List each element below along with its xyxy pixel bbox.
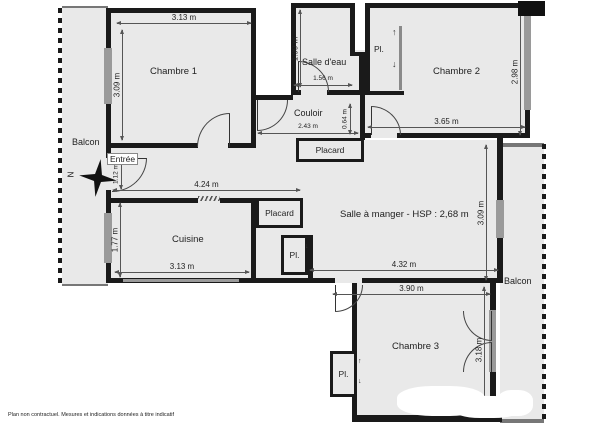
chambre2-label: Chambre 2 [433,66,480,77]
chambre3-label: Chambre 3 [392,341,439,352]
dim-salle-eau-width: 1.56 m [294,85,352,86]
window-chambre2-right [524,12,531,110]
wall-sam-bottom-right [362,278,502,283]
dim-couloir-height: 0.64 m [350,104,351,134]
disclaimer-text: Plan non contractuel. Mesures et indicat… [8,412,174,418]
salle-eau-label: Salle d'eau [302,57,346,67]
pl-chambre3-box: Pl. [330,351,357,397]
wall-chambre3-right-upper [490,283,496,310]
wall-salle-eau-top [291,3,355,8]
cuisine-label: Cuisine [172,234,204,245]
arrow-down-icon: ↓ [358,378,362,385]
balcon-right-label: Balcon [504,276,532,286]
wall-chambre1-right [251,8,256,148]
balcony-left-bottom-edge [62,284,108,286]
dim-cuisine-height: 1.77 m [120,203,121,277]
placard-cuisine-box: Placard [256,198,303,228]
dim-chambre3-width: 3.90 m [333,294,490,295]
wall-placard-chambre2-left [365,3,370,93]
dim-label: 1.77 m [111,228,120,252]
dim-chambre2-width: 3.65 m [368,127,525,128]
dim-label: 3.13 m [172,13,196,22]
radiator-icon [198,196,220,201]
wall-chambre2-bottom [397,133,530,138]
balcony-right-bottom-edge [500,419,544,423]
arrow-up-icon: ↑ [392,28,397,37]
window-cuisine-bottom [123,279,239,282]
salle-eau-floor [293,3,355,53]
dim-label: 3.09 m [113,73,122,97]
dim-couloir-width: 2.43 m [258,133,358,134]
compass-rose-icon [76,156,120,200]
couloir-label: Couloir [294,108,323,118]
balcony-right-top-edge [500,143,544,147]
dim-sam-height: 3.09 m [486,145,487,280]
arrow-up-icon: ↑ [358,358,362,365]
dim-chambre1-width: 3.13 m [117,23,251,24]
dim-label: 3.09 m [477,200,486,224]
white-patch [497,390,533,416]
legend-black-box [518,1,545,16]
wall-chambre1-bottom-right [228,143,256,148]
dim-label: 3.13 m [170,262,194,271]
wall-chambre1-bottom-left [106,143,198,148]
arrow-down-icon: ↓ [305,243,309,250]
dim-label: 2.98 m [511,59,520,83]
placard-couloir-label: Placard [316,145,345,155]
dim-label: 2.43 m [298,123,318,130]
wall-sam-left-lower [308,235,313,283]
wall-placard-chambre2-bottom [365,91,404,95]
pl-cuisine-label: Pl. [290,250,300,260]
balcony-left-top-edge [62,6,108,8]
dim-label: 0.64 m [342,109,349,129]
arrow-down-icon: ↓ [392,60,397,69]
dim-salle-eau-height: 1.99 m [300,10,301,87]
floor-plan: Placard Placard Pl. Pl. 3.13 m 3.09 m 1.… [0,0,609,430]
balcon-left-label: Balcon [72,137,100,147]
wall-chambre2-top [365,3,530,8]
dim-sam-width: 4.32 m [310,270,498,271]
pl-cuisine-box: Pl. [281,235,308,275]
salle-a-manger-label: Salle à manger - HSP : 2,68 m [340,209,469,220]
dim-label: 3.65 m [434,117,458,126]
dim-label: 3.18 m [475,337,484,361]
dim-chambre3-height: 3.18 m [484,287,485,412]
pl-chambre2-label: Pl. [374,44,384,54]
compass-north-label: N [66,172,75,178]
dim-cuisine-width: 3.13 m [115,272,249,273]
dim-chambre2-height: 2.98 m [520,8,521,135]
wall-salle-eau-right-upper [350,3,355,56]
wall-chambre1-left-upper [106,8,111,50]
window-sam-right [496,200,504,238]
wall-chambre1-left-lower [106,104,111,148]
window-chambre1-left [104,48,112,104]
sliding-door-placard-chambre2 [399,26,402,90]
dim-label: 1.56 m [313,75,333,82]
placard-cuisine-label: Placard [265,208,294,218]
chambre1-label: Chambre 1 [150,66,197,77]
placard-couloir-box: Placard [296,138,364,162]
dim-chambre1-height: 3.09 m [122,30,123,140]
balcony-right-railing [542,144,546,423]
wall-sam-right-lower [497,238,503,283]
wall-sam-right-upper [497,143,503,200]
dim-label: 4.32 m [392,260,416,269]
balcony-left-railing [58,8,62,287]
pl-chambre3-label: Pl. [339,369,349,379]
dim-label: 3.90 m [399,284,423,293]
dim-label: 1.99 m [291,36,300,60]
dim-hall-width: 4.24 m [113,190,300,191]
dim-label: 4.24 m [194,180,218,189]
